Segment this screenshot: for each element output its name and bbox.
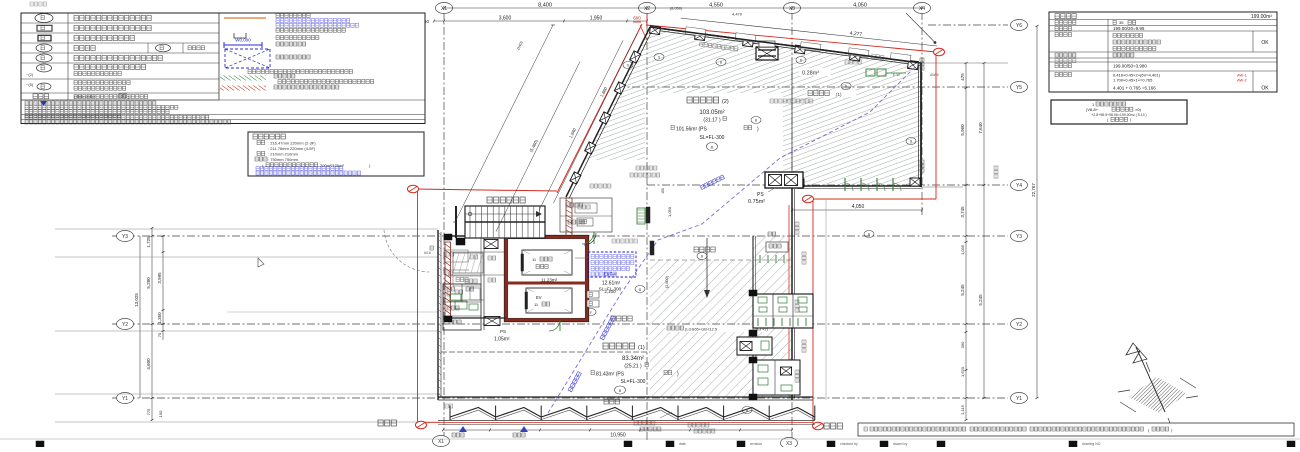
- svg-text:5,280: 5,280: [146, 277, 151, 289]
- svg-text:1,350: 1,350: [157, 312, 162, 324]
- svg-text:+2.8+98.5+98.06=199.00m² ( 5.1: +2.8+98.5+98.06=199.00m² ( 5.13 ): [1091, 113, 1146, 117]
- svg-text:SL=FL-300: SL=FL-300: [621, 379, 646, 385]
- svg-text:3,600: 3,600: [499, 16, 512, 22]
- svg-text:Y5: Y5: [1016, 85, 1022, 91]
- svg-text:(2,600): (2,600): [665, 275, 669, 288]
- svg-text:AW-6: AW-6: [930, 73, 939, 77]
- svg-text:Y6: Y6: [1016, 23, 1022, 29]
- svg-text:Y1: Y1: [1016, 396, 1022, 402]
- svg-text:4,470: 4,470: [732, 12, 743, 17]
- svg-text:35: 35: [1119, 20, 1124, 25]
- svg-text:(V8-8+: (V8-8+: [1086, 107, 1099, 112]
- svg-text:F: F: [590, 311, 592, 315]
- svg-text:AW-2: AW-2: [1237, 78, 1248, 83]
- svg-text:1,950: 1,950: [590, 16, 603, 22]
- svg-text:X4: X4: [919, 6, 925, 12]
- svg-text:390: 390: [960, 341, 965, 348]
- svg-text:0.28m²: 0.28m²: [802, 71, 819, 77]
- svg-text:X2: X2: [644, 6, 650, 12]
- svg-text:150: 150: [158, 410, 163, 417]
- svg-text:OK: OK: [1261, 40, 1269, 46]
- svg-text:PS: PS: [757, 192, 764, 198]
- svg-text:(1): (1): [836, 92, 842, 97]
- svg-text:X3: X3: [786, 441, 792, 447]
- svg-text:199.00m²: 199.00m²: [1251, 14, 1272, 20]
- svg-text:PS: PS: [500, 329, 506, 334]
- svg-text:13,025: 13,025: [134, 293, 139, 307]
- svg-text:4.401 + 0.765 =5.166: 4.401 + 0.765 =5.166: [1113, 86, 1156, 91]
- svg-text:4,050: 4,050: [852, 204, 865, 210]
- svg-text:Y3: Y3: [122, 234, 128, 240]
- svg-text:(25.21 ): (25.21 ): [624, 364, 642, 370]
- svg-text:drawing NO: drawing NO: [1082, 442, 1101, 446]
- svg-text:1,620: 1,620: [960, 366, 965, 377]
- svg-text:200m²/100m²: 200m²/100m²: [320, 163, 344, 168]
- svg-text:: 211.76mm 220mm (4-5F): : 211.76mm 220mm (4-5F): [268, 146, 316, 151]
- svg-text:date: date: [679, 442, 686, 446]
- svg-text:Y4: Y4: [1016, 183, 1022, 189]
- svg-text:4,550: 4,550: [709, 3, 723, 9]
- svg-text:~(5): ~(5): [26, 82, 34, 87]
- svg-text:Y3: Y3: [1016, 234, 1022, 240]
- svg-text:W0,000: W0,000: [235, 38, 251, 43]
- svg-text:OK: OK: [1261, 86, 1269, 92]
- svg-text:600: 600: [633, 16, 641, 21]
- svg-text:1,050: 1,050: [667, 206, 672, 217]
- svg-text:199.00/20=9.95: 199.00/20=9.95: [1113, 26, 1145, 31]
- svg-text:(LGS65+GB-t12.5: (LGS65+GB-t12.5: [685, 327, 718, 332]
- svg-text:2,100: 2,100: [604, 289, 616, 294]
- svg-text:475: 475: [960, 73, 965, 81]
- svg-text:4,600: 4,600: [146, 358, 151, 370]
- svg-text:4,050: 4,050: [853, 3, 867, 9]
- svg-text:6/16: 6/16: [424, 251, 431, 255]
- svg-text:5,245: 5,245: [978, 294, 983, 306]
- svg-text:X3: X3: [789, 6, 795, 12]
- svg-text:5,960: 5,960: [960, 124, 965, 136]
- svg-text:1.700×0.45×1×=0.765: 1.700×0.45×1×=0.765: [1113, 78, 1153, 83]
- svg-text:: 216.47mm 220mm (2-3F): : 216.47mm 220mm (2-3F): [268, 141, 316, 146]
- svg-text:(8,050): (8,050): [670, 6, 683, 11]
- svg-text:7,640: 7,640: [978, 122, 983, 134]
- svg-text:775: 775: [146, 408, 151, 415]
- svg-text:1,725: 1,725: [146, 236, 151, 248]
- svg-text:drawn by: drawn by: [893, 442, 907, 446]
- svg-text:X1: X1: [441, 6, 447, 12]
- svg-text:101.56m² (PS: 101.56m² (PS: [676, 127, 708, 133]
- svg-text:(2): (2): [722, 99, 729, 105]
- svg-text:~(2): ~(2): [26, 72, 34, 77]
- svg-text:1,035: 1,035: [960, 244, 965, 255]
- svg-text:1.05m²: 1.05m²: [494, 337, 510, 343]
- svg-text:: 750mm 750mm: : 750mm 750mm: [268, 157, 299, 162]
- svg-text:(1): (1): [638, 345, 645, 351]
- svg-text:E-W: E-W: [893, 73, 901, 77]
- svg-text:1,115: 1,115: [960, 404, 965, 414]
- svg-text:B: B: [711, 145, 714, 150]
- svg-text:X1: X1: [438, 439, 444, 445]
- svg-text:81.43m² (PS: 81.43m² (PS: [596, 372, 625, 378]
- svg-text:revision: revision: [750, 442, 762, 446]
- svg-text:83.34m²: 83.34m²: [622, 356, 644, 362]
- svg-text:EVF-4: EVF-4: [604, 272, 617, 277]
- svg-text:103.05m²: 103.05m²: [699, 110, 724, 116]
- svg-text:Y2: Y2: [122, 322, 128, 328]
- svg-text:Y1: Y1: [122, 396, 128, 402]
- svg-text:B: B: [619, 388, 622, 393]
- svg-text:8,400: 8,400: [538, 3, 552, 9]
- svg-text:×0): ×0): [1135, 107, 1142, 112]
- svg-text:(750×1,000: (750×1,000: [74, 94, 95, 99]
- svg-text:3,745: 3,745: [960, 206, 965, 218]
- svg-text:(31.17 ): (31.17 ): [703, 118, 721, 124]
- svg-text:: 210mm 210mm: : 210mm 210mm: [268, 152, 299, 157]
- svg-text:checked by: checked by: [840, 442, 858, 446]
- svg-text:70: 70: [157, 332, 162, 337]
- svg-text:SL=FL-300: SL=FL-300: [700, 135, 725, 141]
- svg-text:150: 150: [661, 188, 665, 194]
- svg-text:0.75m²: 0.75m²: [748, 199, 765, 205]
- svg-text:22,767: 22,767: [1031, 183, 1036, 197]
- svg-text:EV: EV: [536, 295, 542, 300]
- svg-text:199.00/50=3.980: 199.00/50=3.980: [1113, 64, 1147, 69]
- svg-text:11.23m²: 11.23m²: [541, 278, 558, 283]
- svg-text:3,995: 3,995: [157, 272, 162, 284]
- svg-text:5,245: 5,245: [960, 284, 965, 296]
- svg-text:10,950: 10,950: [610, 433, 626, 439]
- svg-text:Y2: Y2: [1016, 322, 1022, 328]
